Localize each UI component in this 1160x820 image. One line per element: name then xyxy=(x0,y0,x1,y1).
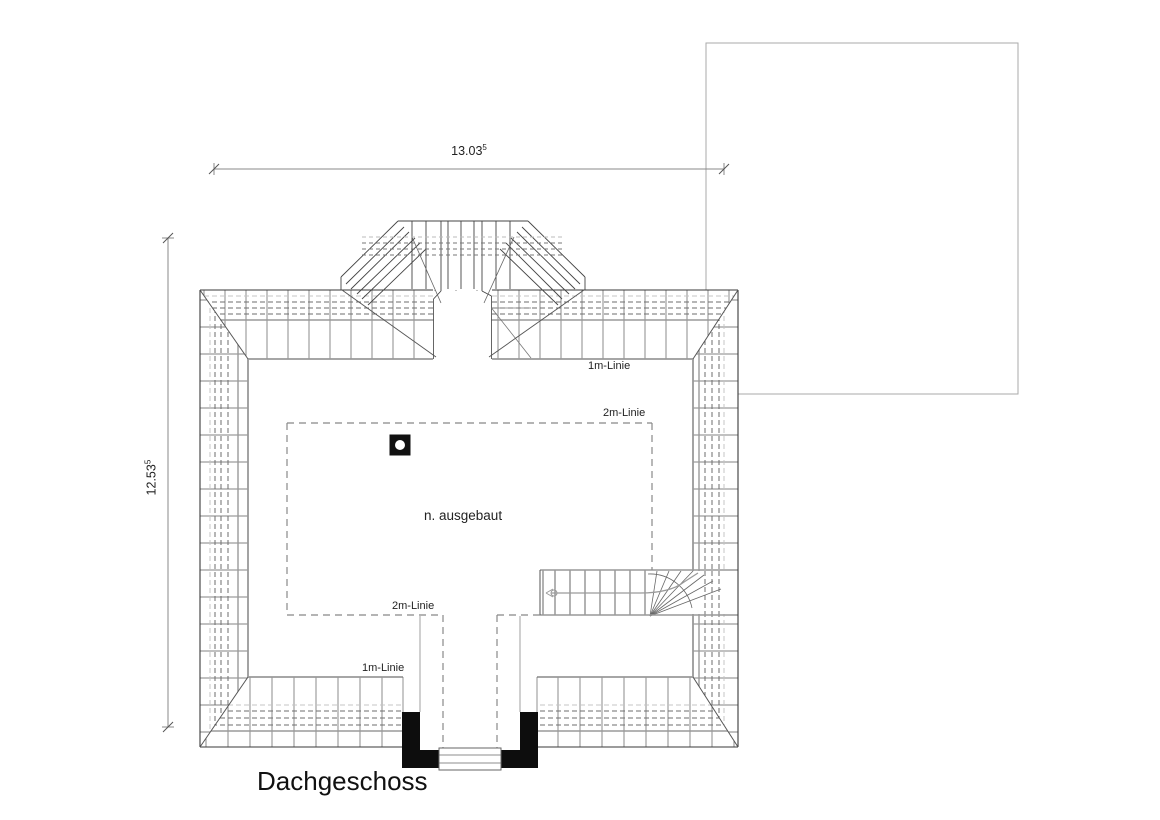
dimension-line-vertical xyxy=(162,233,174,732)
label-2m-linie-top: 2m-Linie xyxy=(603,407,645,419)
label-1m-linie-bottom: 1m-Linie xyxy=(362,662,404,674)
floorplan-canvas: 13.035 12.535 1m-Linie 2m-Linie 2m-Linie… xyxy=(0,0,1160,820)
adjacent-building-outline xyxy=(706,43,1018,394)
floor-title: Dachgeschoss xyxy=(257,766,428,797)
entrance-window xyxy=(439,748,501,770)
staircase xyxy=(540,570,738,616)
dimension-height: 12.535 xyxy=(143,438,158,518)
room-label: n. ausgebaut xyxy=(424,508,502,523)
entrance-recess xyxy=(403,616,537,747)
floorplan-drawing xyxy=(0,0,1160,820)
dimension-line-horizontal xyxy=(209,163,729,175)
dimension-width: 13.035 xyxy=(429,143,509,158)
chimney xyxy=(390,435,411,456)
label-2m-linie-bottom: 2m-Linie xyxy=(392,600,434,612)
label-1m-linie-top: 1m-Linie xyxy=(588,360,630,372)
